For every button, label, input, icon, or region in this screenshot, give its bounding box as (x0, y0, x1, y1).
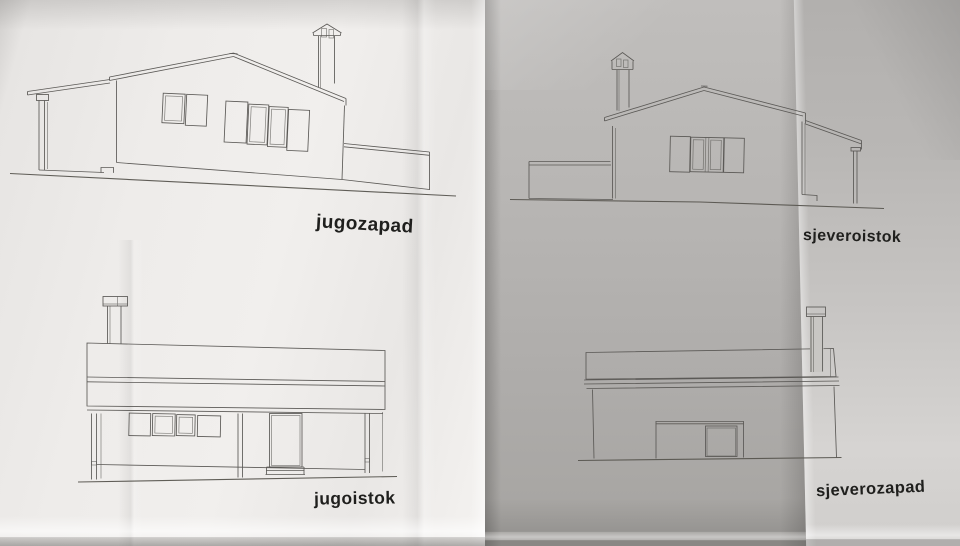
jugoistok-label: jugoistok (314, 487, 396, 509)
low-wall (529, 162, 613, 200)
railing-band (584, 349, 840, 389)
terrace-wall (342, 144, 430, 191)
elevation-sheet-photo: jugozapad sjeveroistok jugoistok sjevero… (0, 0, 960, 546)
ground-line (578, 458, 842, 461)
ground-line (510, 200, 884, 209)
chimney (807, 307, 826, 372)
slatted-door (266, 414, 306, 475)
window-group (129, 413, 221, 437)
window-group (670, 136, 745, 173)
annex (656, 422, 745, 459)
ground-line (78, 477, 397, 483)
jugoistok-elevation-drawing (0, 273, 480, 546)
chimney (611, 53, 634, 112)
sjeveroistok-label: sjeveroistok (803, 227, 902, 247)
chimney (313, 24, 342, 88)
posts (92, 412, 383, 480)
chimney (103, 297, 128, 345)
railing-band (87, 343, 385, 414)
porch (28, 80, 114, 173)
porch (806, 121, 862, 204)
window-group (161, 93, 310, 151)
main-house (110, 53, 347, 180)
main-wall (593, 387, 837, 459)
sjeverozapad-elevation-drawing (480, 273, 960, 546)
